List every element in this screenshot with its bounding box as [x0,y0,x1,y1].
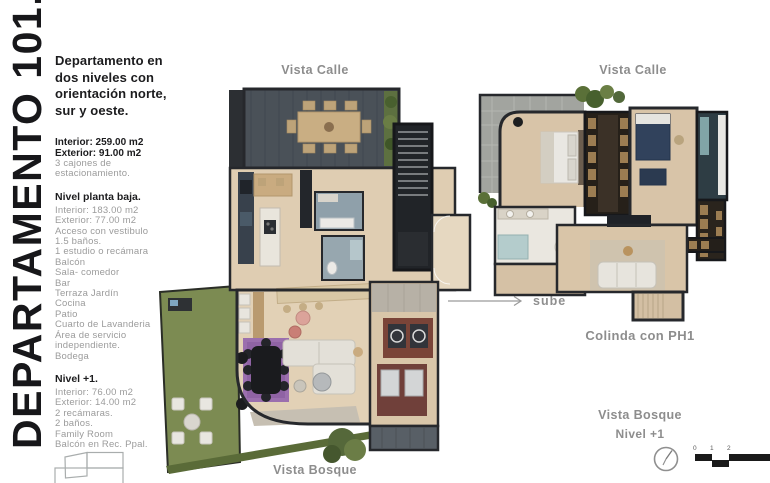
sala-comedor [236,283,373,426]
family-room [557,215,687,292]
walk-in-closet [585,112,630,215]
label-vista-calle-nivel-1: Vista Calle [478,63,770,77]
scale-bar: 0 1 2 [693,443,770,471]
label-vista-bosque-planta-baja: Vista Bosque [150,463,480,477]
bedroom-2 [630,108,697,225]
label-nivel-1: Nivel +1 [540,427,740,441]
stairs [633,292,683,320]
page-title-vertical: DEPARTAMENTO 101. [4,3,51,449]
label-colinda-ph1: Colinda con PH1 [540,328,740,343]
rear-balcony [370,426,438,450]
scale-tick-2: 2 [727,445,731,452]
label-vista-calle-planta-baja: Vista Calle [150,63,480,77]
terraza-jardin [229,89,399,168]
stairwell [394,124,432,270]
scale-tick-1: 1 [710,445,714,452]
brochure-page: { "page": { "title_vertical": "DEPARTAME… [0,0,770,483]
floor-plan-nivel-1 [478,85,730,360]
master-bedroom [500,112,585,207]
bathroom-2 [697,112,727,200]
scale-tick-0: 0 [693,445,697,452]
compass-icon [652,445,680,473]
entry-vestibule [432,215,470,290]
key-plan-outline [52,448,142,483]
service-wing [370,282,438,426]
label-vista-bosque-nivel-1: Vista Bosque [540,408,740,422]
floor-plan-planta-baja [150,80,480,483]
